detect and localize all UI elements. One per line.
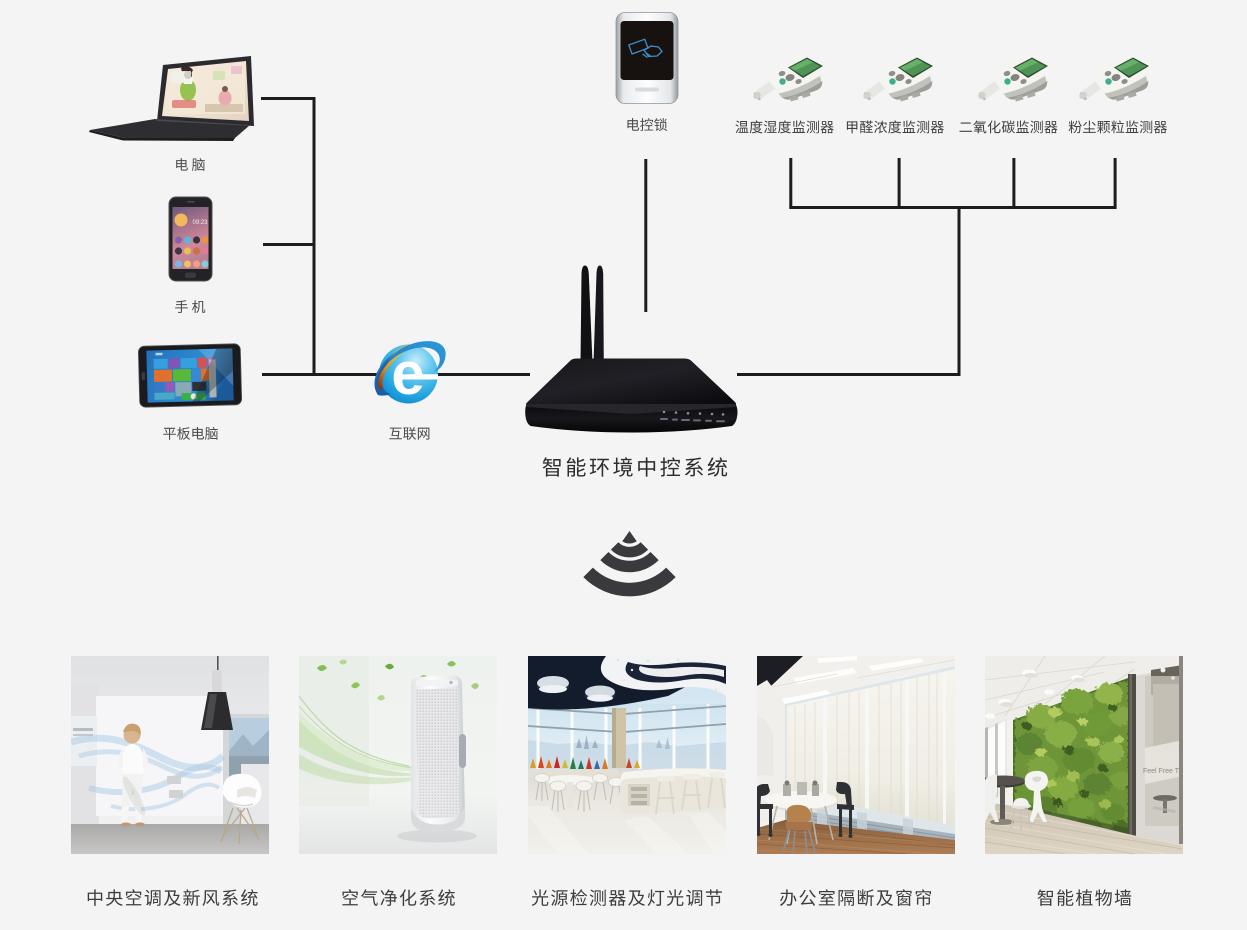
svg-text:Feel Free T: Feel Free T: [1143, 768, 1180, 775]
svg-text:09:23: 09:23: [192, 220, 208, 226]
